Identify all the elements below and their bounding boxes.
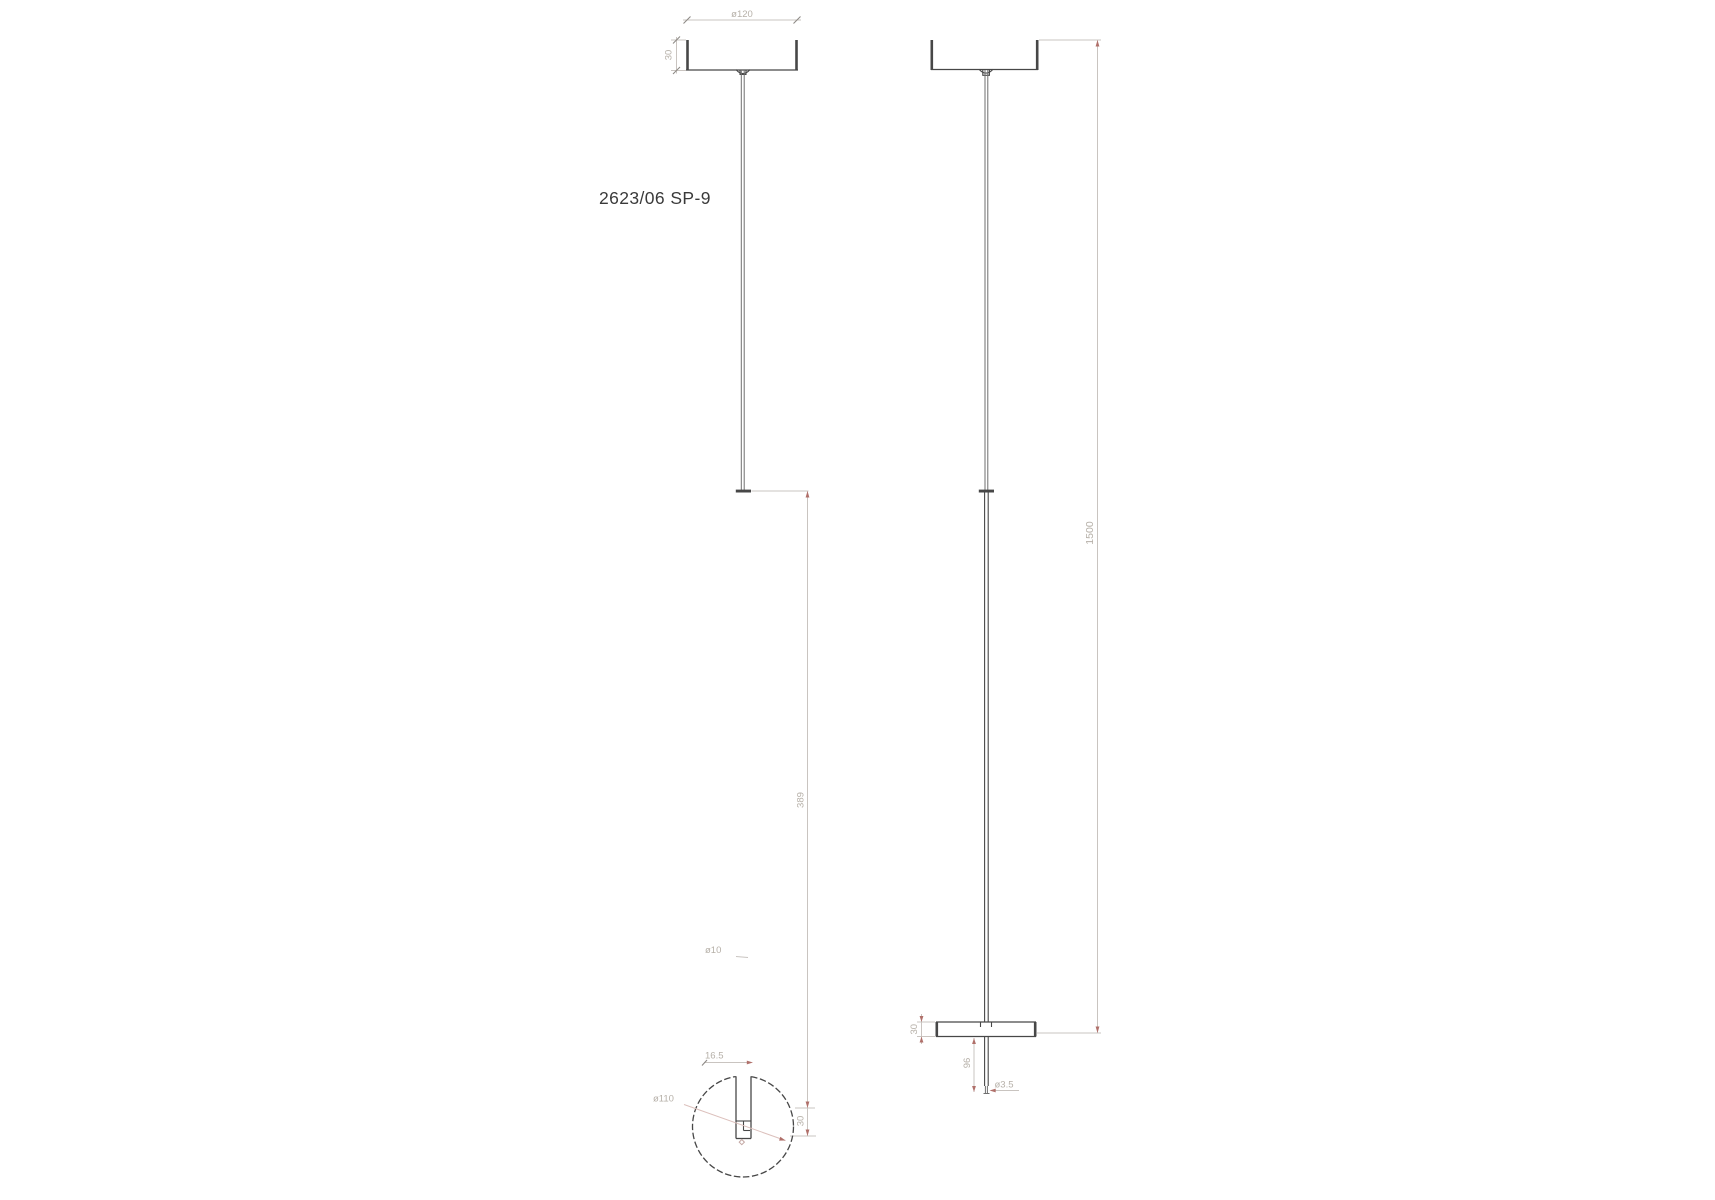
dimension-arrow [1096,40,1100,47]
front-view: ø120 30 389 30 ø10 2623/ [599,9,816,1136]
dimension-arrow [806,1102,810,1109]
slot-width-dimension: 16.5 [705,1051,724,1062]
dimension-arrow [990,1089,996,1093]
lamp-technical-drawing: ø120 30 389 30 ø10 2623/ [0,0,1715,1200]
disc-diameter-leader [684,1105,786,1141]
dimension-arrow [920,1037,924,1043]
dimension-arrow [806,491,810,498]
dimension-arrow [972,1086,976,1092]
dimension-arrow [779,1137,785,1141]
canopy-height-dimension: 30 [664,50,675,61]
technical-drawing-page: ø120 30 389 30 ø10 2623/ [0,0,1715,1200]
dimension-arrow [747,1061,753,1065]
disc-thickness-dimension-front: 30 [796,1116,807,1127]
slot-opening-mask [736,1070,752,1081]
dimension-arrow [806,1130,810,1137]
side-view: 30 96 ø3.5 1500 [909,40,1101,1094]
tip-length-dimension: 96 [962,1058,973,1069]
disc-thickness-dimension-side: 30 [909,1024,920,1035]
tip-diameter-dimension: ø3.5 [995,1080,1014,1091]
disc-diameter-dimension: ø110 [653,1094,674,1105]
stem-top-cap-side [979,490,994,493]
dimension-arrow [972,1038,976,1044]
stem-diameter-dimension: ø10 [705,945,721,956]
dimension-arrow [920,1016,924,1022]
total-height-dimension: 1500 [1084,521,1096,545]
bottom-view: 16.5 ø110 [653,1051,794,1178]
stem-diameter-leader [736,957,748,958]
center-mark-diamond [739,1140,744,1145]
stem-top-cap [736,490,751,493]
stem-length-dimension: 389 [796,792,807,808]
canopy-diameter-dimension: ø120 [731,9,753,20]
model-label: 2623/06 SP-9 [599,188,711,208]
dimension-arrow [1096,1027,1100,1034]
